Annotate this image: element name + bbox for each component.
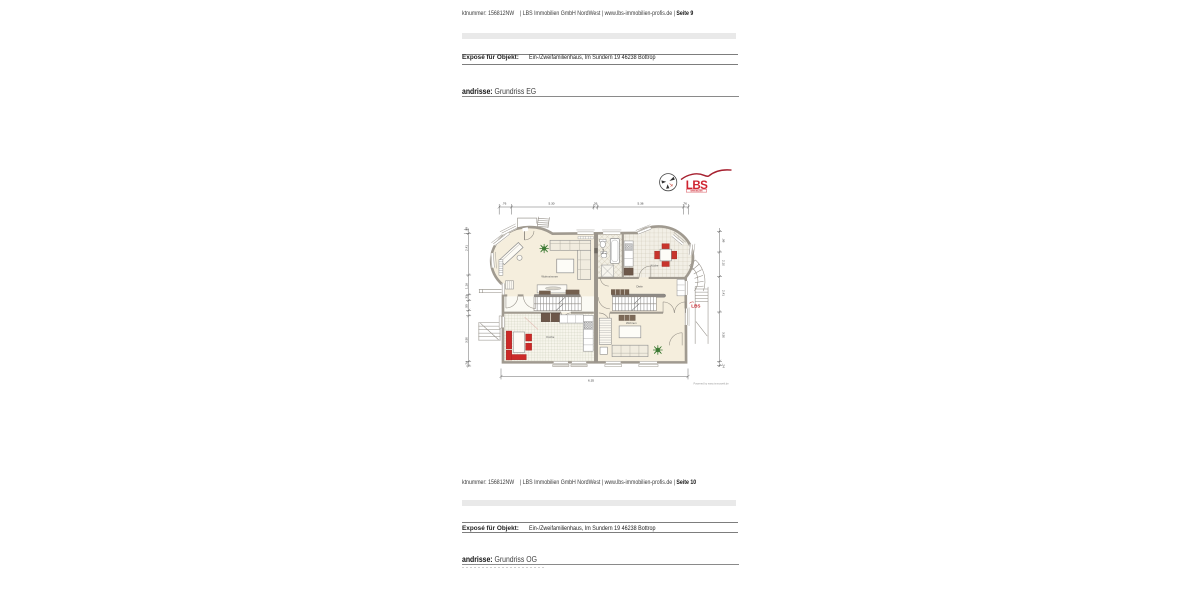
svg-text:5.30: 5.30 <box>549 202 555 206</box>
svg-text:Bad: Bad <box>601 248 605 253</box>
svg-text:.24: .24 <box>721 364 725 369</box>
svg-text:.76: .76 <box>683 202 688 206</box>
svg-text:Wohnzimmer: Wohnzimmer <box>541 274 558 278</box>
svg-text:.33: .33 <box>464 295 468 300</box>
svg-text:Küche: Küche <box>651 264 659 268</box>
svg-text:2.41: 2.41 <box>464 245 468 251</box>
svg-text:.98: .98 <box>721 238 725 243</box>
svg-text:.24: .24 <box>464 361 468 366</box>
svg-text:.55: .55 <box>464 304 468 309</box>
svg-text:Diele: Diele <box>636 284 643 288</box>
svg-text:2.41: 2.41 <box>721 290 725 296</box>
svg-text:.98: .98 <box>464 227 468 232</box>
svg-text:IMMOBILIEN: IMMOBILIEN <box>691 191 704 193</box>
svg-text:1.16: 1.16 <box>464 283 468 289</box>
svg-text:Küche: Küche <box>546 335 555 339</box>
svg-text:5.36: 5.36 <box>638 202 644 206</box>
svg-text:3.50: 3.50 <box>721 332 725 338</box>
svg-text:Powered by www.immowelt.de: Powered by www.immowelt.de <box>694 381 730 385</box>
svg-text:Wohnen: Wohnen <box>626 321 637 325</box>
svg-text:.76: .76 <box>502 202 507 206</box>
svg-text:3.50: 3.50 <box>464 337 468 343</box>
svg-text:LBS: LBS <box>691 304 700 309</box>
svg-text:.26: .26 <box>593 202 598 206</box>
svg-text:2.10: 2.10 <box>721 260 725 266</box>
svg-text:6.35: 6.35 <box>588 378 594 382</box>
